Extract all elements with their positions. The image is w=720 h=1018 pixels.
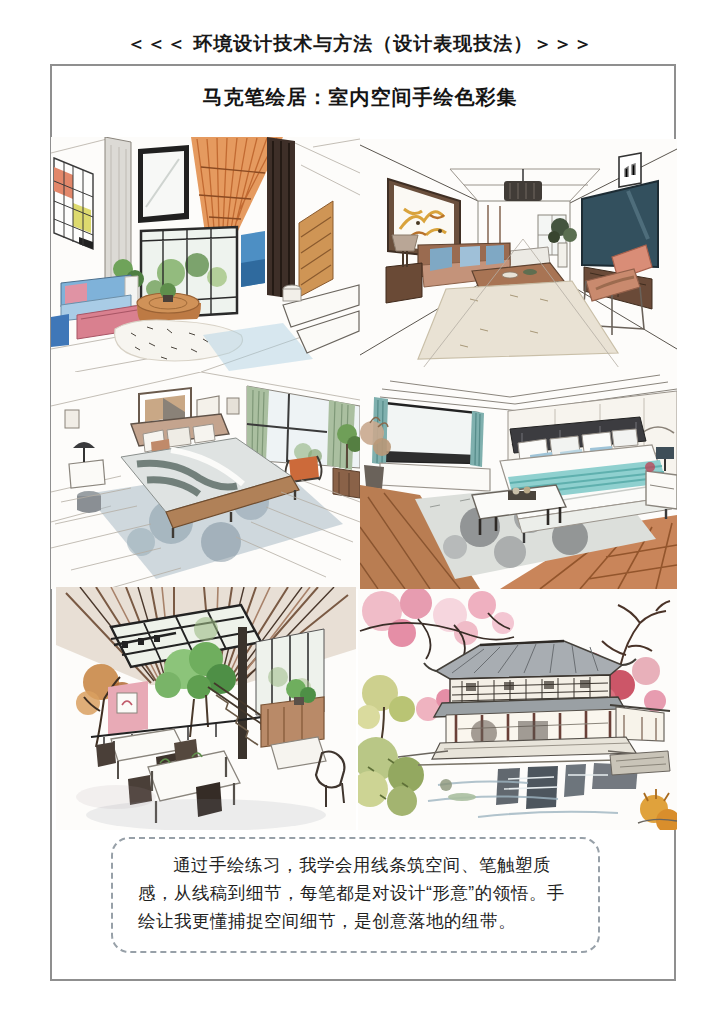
one-point-living-room-sketch [360,139,677,372]
loft-cafe-sketch [56,587,356,830]
garden-pavilion-sketch [358,589,677,830]
caption-box: 通过手绘练习，我学会用线条筑空间、笔触塑质感，从线稿到细节，每笔都是对设计“形意… [111,837,600,953]
garden-pavilion-drawing [358,589,677,830]
page-title: 马克笔绘居：室内空间手绘色彩集 [0,84,720,111]
page: ＜＜＜ 环境设计技术与方法（设计表现技法）＞＞＞ 马克笔绘居：室内空间手绘色彩集 [0,0,720,1018]
teal-bedroom-drawing [360,367,677,589]
loft-cafe-drawing [56,587,356,830]
one-point-living-room-drawing [360,139,677,372]
page-header: ＜＜＜ 环境设计技术与方法（设计表现技法）＞＞＞ [0,31,720,57]
gray-bedroom-drawing [51,372,360,589]
loft-living-room-sketch [51,137,360,372]
loft-living-room-drawing [51,137,360,372]
teal-bedroom-sketch [360,367,677,589]
caption-text: 通过手绘练习，我学会用线条筑空间、笔触塑质感，从线稿到细节，每笔都是对设计“形意… [138,851,573,935]
gray-bedroom-sketch [51,372,360,589]
